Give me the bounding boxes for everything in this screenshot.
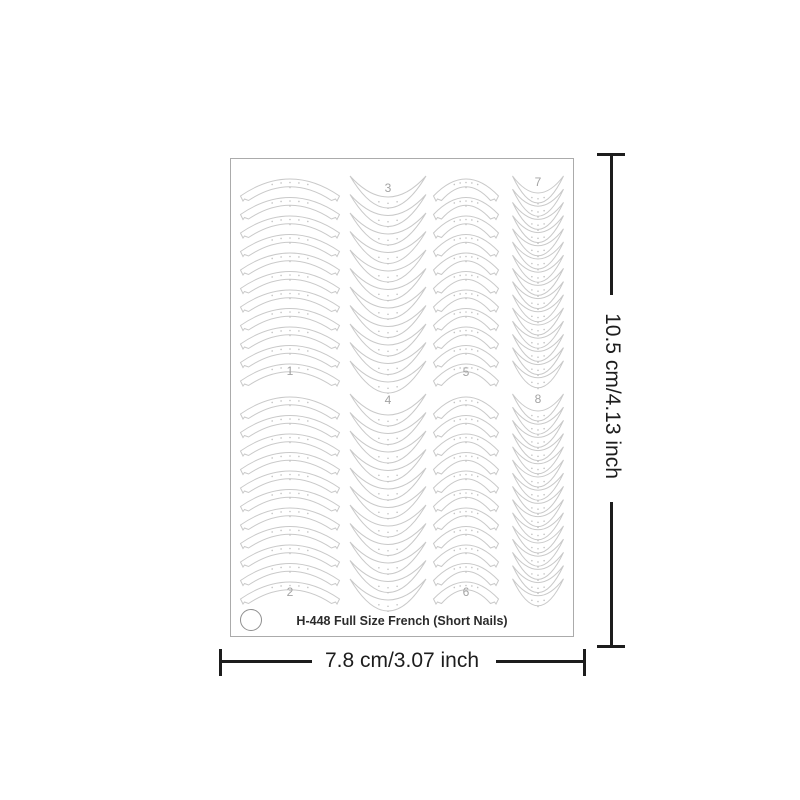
width-dimension-cap-right [583,649,586,676]
width-dimension-line-left [222,660,312,663]
column-number-3: 3 [385,182,392,194]
column-number-1: 1 [287,365,294,377]
width-dimension-line-right [496,660,584,663]
height-dimension-cap-bottom [597,645,625,648]
column-number-8: 8 [535,393,542,405]
column-number-7: 7 [535,176,542,188]
sheet-label: H-448 Full Size French (Short Nails) [231,614,573,628]
column-number-2: 2 [287,586,294,598]
product-diagram: 1 2 3 4 5 6 7 8 H-448 Full Size French (… [0,0,800,800]
height-dimension-label: 10.5 cm/4.13 inch [600,313,624,479]
height-dimension-line-upper [610,154,613,295]
width-dimension-label: 7.8 cm/3.07 inch [325,649,479,673]
sticker-sheet: 1 2 3 4 5 6 7 8 H-448 Full Size French (… [230,158,574,637]
column-number-4: 4 [385,394,392,406]
height-dimension-line-lower [610,502,613,647]
sticker-shapes [231,159,575,638]
column-number-5: 5 [463,366,470,378]
column-number-6: 6 [463,586,470,598]
